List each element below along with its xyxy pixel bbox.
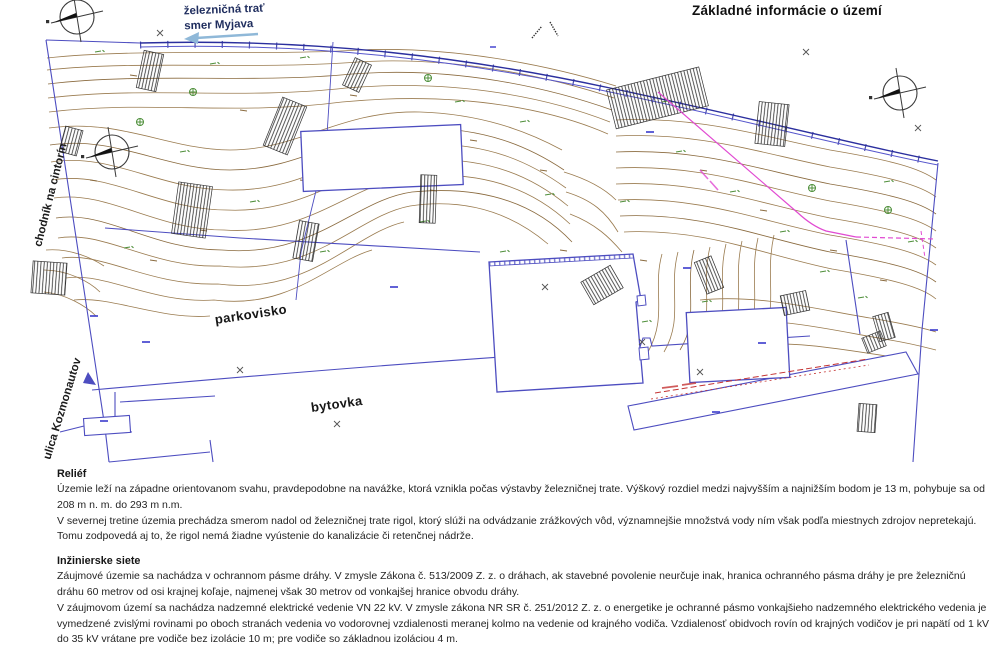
section-utilities-paragraph: V záujmovom území sa nachádza nadzemné e… [57, 601, 989, 648]
section-utilities-heading: Inžinierske siete [57, 553, 989, 569]
section-relief-paragraph: Územie leží na západne orientovanom svah… [57, 482, 989, 514]
section-utilities: Inžinierske siete Záujmové územie sa nac… [57, 553, 989, 648]
railway-label-line2: smer Myjava [184, 17, 265, 35]
description-sections: Reliéf Územie leží na západne orientovan… [57, 466, 989, 648]
section-relief-heading: Reliéf [57, 466, 989, 482]
section-utilities-paragraph: Záujmové územie sa nachádza v ochrannom … [57, 569, 989, 601]
power-line [658, 92, 936, 258]
section-relief: Reliéf Územie leží na západne orientovan… [57, 466, 989, 545]
document-page: Základné informácie o území železničná t… [0, 0, 1000, 650]
building-outlines [301, 125, 790, 392]
railway-direction-label: železničná trať smer Myjava [184, 2, 266, 35]
misc-annotation-marks [490, 22, 558, 47]
railway-line [140, 42, 938, 165]
site-plan-drawing [0, 0, 1000, 468]
site-plan-map: Základné informácie o území železničná t… [0, 0, 1000, 468]
page-title: Základné informácie o území [692, 3, 882, 18]
section-relief-paragraph: V severnej tretine územia prechádza smer… [57, 514, 989, 546]
